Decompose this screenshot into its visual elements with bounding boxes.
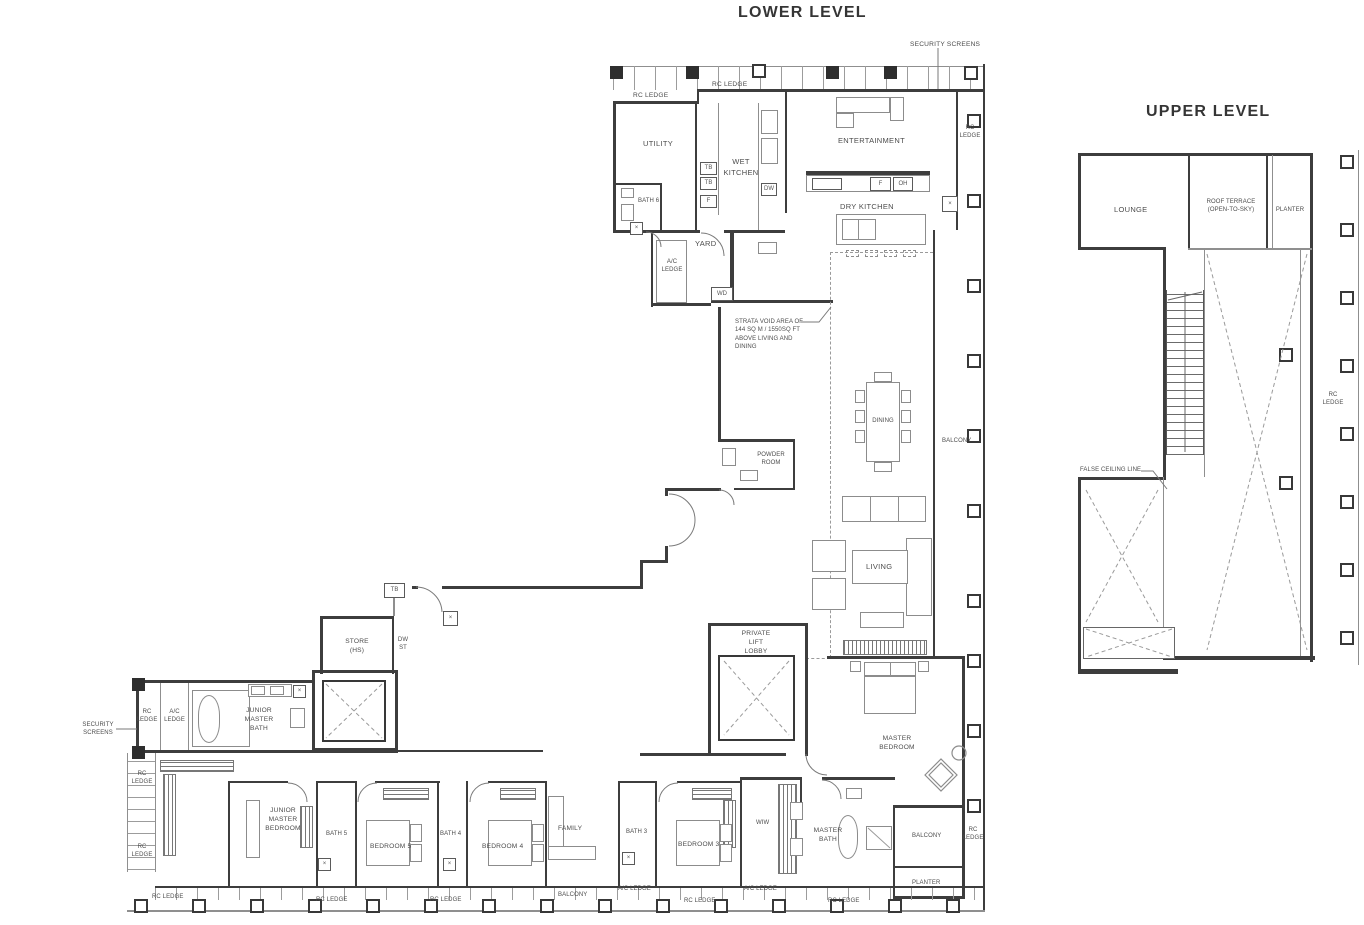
pillow bbox=[532, 844, 544, 862]
wall bbox=[893, 866, 963, 868]
sofa-divider bbox=[898, 496, 899, 522]
wall bbox=[1078, 247, 1166, 250]
wall bbox=[740, 777, 742, 888]
void-cross bbox=[1086, 490, 1158, 622]
rc-ledge-label: RC LEDGE bbox=[828, 897, 859, 905]
ledge-divider bbox=[188, 683, 189, 750]
cabinet-line bbox=[718, 103, 719, 215]
wall bbox=[640, 560, 668, 563]
basin bbox=[270, 686, 284, 695]
lounge-chair-inner bbox=[929, 763, 953, 787]
wall bbox=[793, 439, 795, 490]
sofa bbox=[906, 538, 932, 616]
column bbox=[888, 899, 902, 913]
sofa-divider bbox=[870, 496, 871, 522]
leader-lines bbox=[116, 48, 1167, 729]
column bbox=[686, 66, 699, 79]
rc-ledge-label: RC LEDGE bbox=[152, 893, 183, 901]
chair bbox=[874, 372, 892, 382]
security-screens-label: SECURITY SCREENS bbox=[78, 721, 118, 738]
void-cross bbox=[1207, 254, 1307, 650]
wall bbox=[618, 781, 657, 783]
room-label-entertainment: ENTERTAINMENT bbox=[838, 136, 905, 147]
wall bbox=[1078, 153, 1081, 250]
wall bbox=[316, 781, 355, 783]
wall bbox=[228, 781, 230, 888]
wall bbox=[488, 781, 545, 783]
column bbox=[1340, 427, 1354, 441]
column bbox=[540, 899, 554, 913]
wd-box: WD bbox=[711, 287, 733, 301]
column bbox=[967, 724, 981, 738]
rc-ledge-label: RC LEDGE bbox=[316, 896, 347, 904]
side-table bbox=[850, 661, 861, 672]
upper-level-title: UPPER LEVEL bbox=[1146, 103, 1270, 121]
wall bbox=[136, 750, 398, 753]
security-screens-label: SECURITY SCREENS bbox=[910, 40, 980, 49]
door-arc bbox=[806, 754, 827, 775]
floor-plan-canvas: LOWER LEVEL UPPER LEVEL × TB TB F DW bbox=[0, 0, 1364, 925]
room-label-balcony: BALCONY bbox=[942, 437, 971, 445]
wall bbox=[708, 623, 808, 626]
pillow bbox=[720, 844, 732, 862]
tb-box: TB bbox=[700, 162, 717, 175]
wardrobe-hatch bbox=[692, 788, 732, 800]
wall bbox=[1078, 477, 1166, 480]
rc-ledge-label: RC LEDGE bbox=[430, 896, 461, 904]
wardrobe-hatch bbox=[163, 774, 176, 856]
room-label-private-lift-lobby: PRIVATE LIFT LOBBY bbox=[716, 629, 796, 657]
column bbox=[1340, 359, 1354, 373]
wall bbox=[651, 232, 653, 307]
armchair bbox=[812, 578, 846, 610]
column bbox=[1340, 155, 1354, 169]
column bbox=[610, 66, 623, 79]
wall bbox=[640, 753, 710, 756]
wall bbox=[651, 303, 711, 306]
room-label-bath4: BATH 4 bbox=[440, 830, 461, 838]
column bbox=[772, 899, 786, 913]
aircon-unit: × bbox=[443, 858, 456, 871]
door-arc bbox=[470, 783, 489, 802]
column bbox=[132, 678, 145, 691]
wall bbox=[395, 670, 398, 750]
room-label-wiw: WIW bbox=[756, 819, 769, 827]
room-label-junior-master-bedroom: JUNIOR MASTER BEDROOM bbox=[253, 806, 313, 834]
aircon-unit: × bbox=[630, 222, 643, 235]
ac-ledge-label: A/C LEDGE bbox=[618, 885, 651, 893]
column bbox=[714, 899, 728, 913]
ac-ledge-label: A/C LEDGE bbox=[658, 258, 686, 275]
aircon-unit: × bbox=[293, 685, 306, 698]
sofa bbox=[842, 496, 926, 522]
door-arc bbox=[669, 520, 695, 546]
lounge-chair bbox=[925, 759, 957, 791]
ledge-line bbox=[1358, 150, 1359, 665]
wardrobe-hatch bbox=[383, 788, 429, 800]
column bbox=[656, 899, 670, 913]
door-arc bbox=[719, 490, 734, 505]
wall bbox=[613, 183, 662, 185]
room-label-balcony: BALCONY bbox=[912, 832, 941, 840]
wall bbox=[677, 781, 740, 783]
chair bbox=[901, 390, 911, 403]
wall bbox=[312, 670, 315, 750]
pillow bbox=[410, 824, 422, 842]
room-label-wet-kitchen: WET KITCHEN bbox=[720, 157, 762, 178]
room-label-junior-master-bath: JUNIOR MASTER BATH bbox=[230, 706, 288, 734]
lift-shaft bbox=[322, 680, 386, 742]
chair bbox=[901, 410, 911, 423]
basin bbox=[251, 686, 265, 695]
door-arc bbox=[288, 783, 307, 802]
wall bbox=[805, 623, 808, 756]
column bbox=[826, 66, 839, 79]
wardrobe-hatch bbox=[160, 760, 234, 772]
column bbox=[967, 279, 981, 293]
room-label-bedroom4: BEDROOM 4 bbox=[482, 842, 523, 851]
wall bbox=[697, 89, 985, 92]
pillow bbox=[720, 824, 732, 842]
column bbox=[967, 799, 981, 813]
wall bbox=[618, 781, 620, 888]
column bbox=[1279, 476, 1293, 490]
staircase bbox=[1166, 290, 1204, 455]
ottoman bbox=[860, 612, 904, 628]
room-label-balcony: BALCONY bbox=[558, 891, 587, 899]
room-label-master-bath: MASTER BATH bbox=[808, 826, 848, 844]
plan-annotations bbox=[0, 0, 1364, 925]
column bbox=[1340, 495, 1354, 509]
wall bbox=[392, 616, 394, 674]
column bbox=[1340, 563, 1354, 577]
wall bbox=[1078, 153, 1312, 156]
master-bedroom-chair bbox=[925, 746, 966, 791]
aircon-unit: × bbox=[318, 858, 331, 871]
room-label-bath6: BATH 6 bbox=[638, 197, 659, 205]
rc-ledge-label: RC LEDGE bbox=[128, 843, 156, 860]
room-label-store: STORE (HS) bbox=[336, 637, 378, 655]
room-label-dining: DINING bbox=[866, 417, 900, 425]
void-crosses bbox=[326, 254, 1307, 738]
sofa bbox=[836, 113, 854, 128]
false-ceiling-edge bbox=[1163, 477, 1164, 627]
wall bbox=[1188, 155, 1190, 250]
bathtub bbox=[198, 695, 220, 743]
wall bbox=[1078, 669, 1178, 674]
wall bbox=[375, 781, 440, 783]
ac-ledge-label: A/C LEDGE bbox=[161, 708, 188, 725]
toilet bbox=[722, 448, 736, 466]
column bbox=[946, 899, 960, 913]
wall bbox=[708, 753, 786, 756]
column bbox=[1340, 223, 1354, 237]
oh-box: OH bbox=[893, 177, 913, 191]
chair bbox=[855, 430, 865, 443]
door-arc bbox=[416, 587, 442, 612]
wall bbox=[665, 488, 668, 496]
wardrobe-hatch bbox=[500, 788, 536, 800]
window-line bbox=[1300, 250, 1301, 656]
pillow-divider bbox=[890, 662, 891, 676]
floor-trap bbox=[758, 242, 777, 254]
room-label-planter: PLANTER bbox=[912, 879, 940, 887]
wall bbox=[734, 488, 795, 490]
wall bbox=[718, 439, 795, 442]
wardrobe-hatch bbox=[778, 784, 797, 874]
dw-box: DW bbox=[761, 183, 777, 196]
bed bbox=[864, 676, 916, 714]
rc-ledge-label: RC LEDGE bbox=[957, 124, 983, 141]
island-divider bbox=[858, 219, 859, 240]
wall bbox=[660, 183, 662, 232]
sink bbox=[761, 110, 778, 134]
sofa bbox=[548, 846, 596, 860]
wall bbox=[412, 586, 418, 589]
wall bbox=[640, 560, 643, 589]
room-label-living: LIVING bbox=[866, 562, 892, 573]
room-label-utility: UTILITY bbox=[635, 139, 681, 150]
chair bbox=[874, 462, 892, 472]
aircon-unit: × bbox=[622, 852, 635, 865]
fridge-box: F bbox=[700, 195, 717, 208]
rc-ledge-label: RC LEDGE bbox=[712, 80, 747, 89]
outer-wall bbox=[983, 64, 985, 912]
column bbox=[1340, 631, 1354, 645]
ac-ledge-label: A/C LEDGE bbox=[744, 885, 777, 893]
pillow bbox=[410, 844, 422, 862]
aircon-unit: × bbox=[443, 611, 458, 626]
basin bbox=[621, 188, 634, 198]
hob bbox=[761, 138, 778, 164]
strata-void-line bbox=[830, 252, 933, 253]
door-arc bbox=[659, 783, 678, 802]
strata-void-note: STRATA VOID AREA OF 144 SQ M / 1550SQ FT… bbox=[735, 318, 807, 352]
island-sink bbox=[842, 219, 876, 240]
wall bbox=[708, 623, 711, 756]
false-ceiling-line-label: FALSE CEILING LINE bbox=[1080, 466, 1141, 474]
wall bbox=[1163, 656, 1315, 660]
room-label-powder-room: POWDER ROOM bbox=[750, 451, 792, 468]
armchair bbox=[812, 540, 846, 572]
side-table bbox=[918, 661, 929, 672]
column bbox=[598, 899, 612, 913]
wall bbox=[320, 616, 394, 619]
sofa bbox=[836, 97, 890, 113]
wall bbox=[697, 89, 699, 103]
basin bbox=[846, 788, 862, 799]
room-label-dry-kitchen: DRY KITCHEN bbox=[840, 202, 894, 213]
wall bbox=[442, 586, 642, 589]
rc-ledge-label: RC LEDGE bbox=[684, 897, 715, 905]
chair bbox=[855, 410, 865, 423]
column bbox=[967, 194, 981, 208]
wall-connector bbox=[393, 598, 395, 616]
basin bbox=[740, 470, 758, 481]
column bbox=[884, 66, 897, 79]
wall bbox=[228, 781, 288, 783]
wall bbox=[437, 781, 439, 888]
wall bbox=[466, 781, 468, 888]
chair bbox=[901, 430, 911, 443]
fridge-box: F bbox=[870, 177, 891, 191]
wall bbox=[312, 670, 398, 673]
column bbox=[964, 66, 978, 80]
wall bbox=[320, 616, 323, 674]
wall bbox=[655, 781, 657, 888]
column bbox=[967, 354, 981, 368]
wall bbox=[613, 230, 700, 233]
toilet bbox=[621, 204, 634, 221]
rc-ledge-label: RC LEDGE bbox=[128, 770, 156, 787]
column bbox=[1340, 291, 1354, 305]
stair-wall-line bbox=[1204, 250, 1205, 477]
wall bbox=[695, 103, 697, 232]
door-arc bbox=[669, 494, 695, 520]
wardrobe-hatch bbox=[843, 640, 927, 655]
wall bbox=[962, 656, 965, 898]
dw-st-label: DW ST bbox=[396, 636, 410, 653]
wall bbox=[545, 781, 547, 888]
sofa bbox=[548, 796, 564, 850]
balcony-wall bbox=[933, 230, 935, 658]
rc-ledge-label: RC LEDGE bbox=[633, 91, 668, 100]
room-label-roof-terrace: ROOF TERRACE (OPEN-TO-SKY) bbox=[1200, 198, 1262, 215]
terrace-sill bbox=[1188, 248, 1312, 250]
wall bbox=[613, 101, 699, 104]
room-label-bedroom5: BEDROOM 5 bbox=[370, 842, 411, 851]
column bbox=[967, 594, 981, 608]
tb-box: TB bbox=[700, 177, 717, 190]
room-label-bedroom3: BEDROOM 3 bbox=[678, 840, 719, 849]
wall bbox=[398, 750, 543, 752]
wall bbox=[1266, 155, 1268, 250]
room-label-master-bedroom: MASTER BEDROOM bbox=[872, 734, 922, 752]
room-label-family: FAMILY bbox=[558, 824, 582, 833]
wall bbox=[1078, 477, 1081, 673]
room-label-bath5: BATH 5 bbox=[326, 830, 347, 838]
lower-level-title: LOWER LEVEL bbox=[738, 4, 867, 22]
column bbox=[134, 899, 148, 913]
sofa bbox=[890, 97, 904, 121]
column bbox=[1279, 348, 1293, 362]
column bbox=[250, 899, 264, 913]
column bbox=[192, 899, 206, 913]
wall bbox=[893, 805, 965, 808]
column bbox=[967, 504, 981, 518]
shower bbox=[866, 826, 892, 850]
lift-shaft bbox=[718, 655, 795, 741]
wall bbox=[665, 488, 721, 491]
wall bbox=[785, 90, 787, 213]
wall bbox=[355, 781, 357, 888]
wall bbox=[718, 307, 721, 441]
tb-box: TB bbox=[384, 583, 405, 598]
wall bbox=[822, 777, 895, 780]
pillow bbox=[532, 824, 544, 842]
aircon-unit: × bbox=[942, 196, 958, 212]
appliance-box bbox=[812, 178, 842, 190]
wall bbox=[893, 805, 895, 898]
planter-line bbox=[1272, 155, 1273, 250]
wall bbox=[827, 656, 965, 659]
room-label-lounge: LOUNGE bbox=[1114, 205, 1147, 216]
room-label-yard: YARD bbox=[695, 239, 716, 250]
rc-ledge-label: RC LEDGE bbox=[134, 708, 160, 725]
toilet bbox=[290, 708, 305, 728]
door-arc bbox=[358, 783, 377, 802]
rc-ledge-label: RC LEDGE bbox=[1320, 391, 1346, 408]
wall bbox=[136, 680, 312, 683]
room-label-planter: PLANTER bbox=[1272, 206, 1308, 214]
chair bbox=[855, 390, 865, 403]
vanity bbox=[790, 802, 803, 820]
column bbox=[967, 654, 981, 668]
door-arc bbox=[822, 780, 841, 799]
vanity bbox=[790, 838, 803, 856]
wall bbox=[742, 777, 800, 780]
room-label-bath3: BATH 3 bbox=[626, 828, 647, 836]
wall bbox=[613, 101, 616, 232]
column bbox=[482, 899, 496, 913]
column bbox=[366, 899, 380, 913]
planter-box bbox=[1083, 627, 1175, 659]
column bbox=[752, 64, 766, 78]
rc-ledge-label: RC LEDGE bbox=[962, 826, 984, 843]
wall bbox=[1310, 153, 1313, 662]
ledge-ticks bbox=[613, 66, 985, 90]
wall bbox=[316, 781, 318, 888]
